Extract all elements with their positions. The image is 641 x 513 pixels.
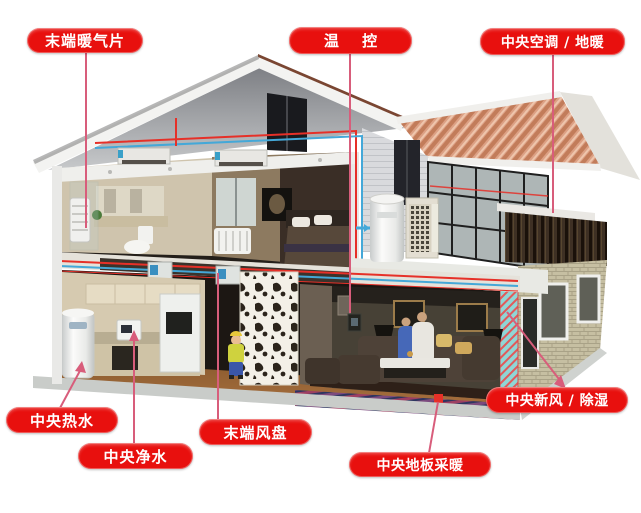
bed: [284, 210, 356, 268]
brick-window-2: [578, 276, 599, 322]
label-terminal-fan-coil: 末端风盘: [199, 419, 312, 445]
label-terminal-radiator: 末端暖气片: [27, 28, 143, 53]
label-fresh-air-dehumidifier: 中央新风 / 除湿: [486, 387, 628, 413]
hvac-house-diagram: 末端暖气片 温 控 中央空调 / 地暖 中央热水 中央净水 末端风盘 中央地板采…: [0, 0, 641, 513]
ceiling-fan-coil-2: [215, 150, 267, 166]
water-purifier: [117, 320, 141, 340]
living-room: [300, 284, 503, 400]
carved-screen: [240, 272, 298, 385]
heat-pump-outdoor-unit: [406, 198, 438, 258]
label-central-ac-floor-heating: 中央空调 / 地暖: [480, 28, 625, 55]
panel-radiator: [214, 228, 251, 254]
framed-art-2: [457, 304, 487, 331]
label-central-water-purifier: 中央净水: [78, 443, 193, 469]
label-thermostat: 温 控: [289, 27, 412, 54]
label-central-hot-water: 中央热水: [6, 407, 118, 433]
refrigerator: [160, 294, 200, 372]
toilet: [124, 240, 150, 254]
fresh-air-wall-layer: [500, 282, 518, 400]
label-central-floor-heating: 中央地板采暖: [349, 452, 491, 477]
thermostat: [348, 314, 361, 331]
slab-fan-coil-2: [216, 266, 240, 284]
floor-heating-marker: [434, 394, 443, 403]
ceiling-fan-coil-1: [118, 148, 170, 164]
house-cutaway-illustration: [0, 0, 641, 513]
left-wall-edge: [52, 166, 62, 384]
